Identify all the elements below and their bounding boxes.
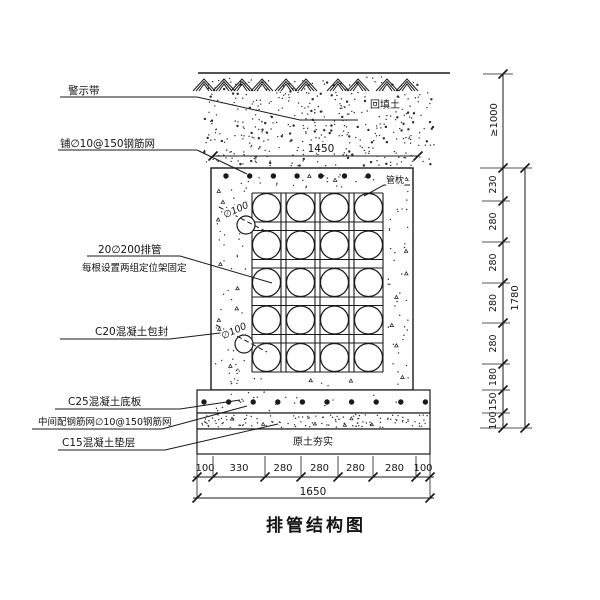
drawing-title: 排管结构图 <box>266 515 366 536</box>
dim-bottom-seg-5: 280 <box>385 463 404 474</box>
dim-right-seg-5: 180 <box>488 368 499 386</box>
dim-right-seg-6: 150 <box>488 392 499 410</box>
mid-mesh-label: 中间配钢筋网∅10@150钢筋网 <box>38 416 172 428</box>
dim-bottom-seg-3: 280 <box>310 463 329 474</box>
pipes-label-line1: 20∅200排管 <box>98 243 162 256</box>
compacted-soil-label: 原土夯实 <box>293 435 333 448</box>
encasement-label: C20混凝土包封 <box>95 325 169 338</box>
dim-right-seg-0: 230 <box>488 175 499 193</box>
cushion-label: C15混凝土垫层 <box>62 436 135 449</box>
dim-bottom-seg-6: 100 <box>413 463 432 474</box>
dim-bottom-seg-2: 280 <box>273 463 292 474</box>
dim-right-seg-7: 100 <box>488 411 499 429</box>
pipe-pillow-label: 管枕 <box>386 174 404 186</box>
dim-bottom-seg-4: 280 <box>346 463 365 474</box>
warning-tape-label: 警示带 <box>68 84 100 97</box>
dim-right-cover: ≥1000 <box>489 103 500 137</box>
pipe-structure-drawing: 警示带 铺∅10@150钢筋网 20∅200排管 每根设置两组定位架固定 C20… <box>0 0 600 600</box>
backfill-label: 回填土 <box>370 98 400 111</box>
dim-right-seg-4: 280 <box>488 334 499 352</box>
dim-right-total: 1780 <box>510 285 521 310</box>
pipes-label-line2: 每根设置两组定位架固定 <box>82 262 187 274</box>
dim-right-seg-3: 280 <box>488 294 499 312</box>
dim-bottom-seg-1: 330 <box>229 463 248 474</box>
ground-surface <box>193 73 450 91</box>
top-mesh-label: 铺∅10@150钢筋网 <box>60 137 155 150</box>
dim-bottom-seg-0: 100 <box>195 463 214 474</box>
dim-bottom-total: 1650 <box>300 486 327 498</box>
dim-right-seg-1: 280 <box>488 212 499 230</box>
base-slab-label: C25混凝土底板 <box>68 395 142 408</box>
dim-right-seg-2: 280 <box>488 253 499 271</box>
dim-top-width: 1450 <box>308 143 335 155</box>
drawing-svg: 警示带 铺∅10@150钢筋网 20∅200排管 每根设置两组定位架固定 C20… <box>0 0 600 600</box>
